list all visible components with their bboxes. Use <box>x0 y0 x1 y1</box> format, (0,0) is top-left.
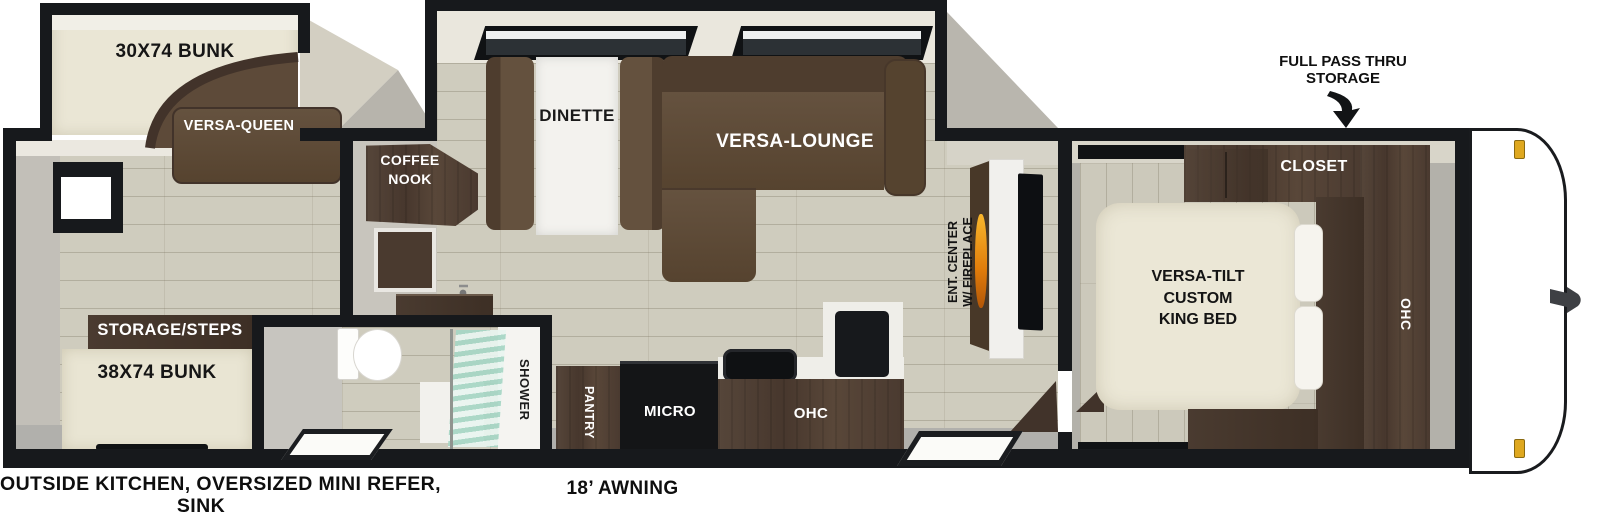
king-bed-label: VERSA-TILT CUSTOM KING BED <box>1106 266 1290 331</box>
bathroom-wall-top <box>252 315 552 327</box>
dinette-label: DINETTE <box>532 107 622 125</box>
wall-cabinet-panel <box>374 228 436 292</box>
rear-wall-right <box>340 135 353 327</box>
ent-center-label: ENT. CENTER W/ FIREPLACE <box>946 202 976 322</box>
awning-label: 18’ AWNING <box>540 479 705 500</box>
versa-lounge-armrest <box>884 59 926 196</box>
bedroom-wardrobe <box>1316 197 1364 464</box>
fireplace-flame-icon <box>975 214 987 308</box>
bathroom-wall-left <box>252 315 264 460</box>
window-glass <box>743 31 921 55</box>
pass-thru-annotation: FULL PASS THRU STORAGE <box>1268 53 1418 87</box>
pantry-label: PANTRY <box>574 372 596 452</box>
bunk-slide-wall-left <box>40 3 52 135</box>
ent-center-label-line1: ENT. CENTER <box>946 202 961 322</box>
coffee-nook-label-line1: COFFEE <box>368 153 452 168</box>
roof-angle-right <box>947 12 1058 128</box>
rear-window-pane <box>61 177 111 219</box>
outside-kitchen-label-line1: OUTSIDE KITCHEN, OVERSIZED MINI REFER, <box>0 474 402 495</box>
dinette-bench-left <box>486 57 534 230</box>
king-bed-label-line1: VERSA-TILT <box>1106 266 1290 288</box>
shower-label: SHOWER <box>506 341 532 439</box>
bedroom-ohc-label: OHC <box>1388 283 1414 345</box>
kitchen-ohc-label: OHC <box>718 406 904 422</box>
bunk-30x74-label: 30X74 BUNK <box>95 42 255 63</box>
floorplan: 30X74 BUNK VERSA-QUEEN DINETTE VERSA-LOU… <box>0 0 1600 517</box>
king-bed-label-line2: CUSTOM <box>1106 288 1290 310</box>
window-glass <box>486 31 686 55</box>
pass-thru-line2: STORAGE <box>1268 70 1418 87</box>
main-wall-top-right <box>935 128 1469 141</box>
storage-steps-label: STORAGE/STEPS <box>88 322 252 340</box>
overbed-cabinet-divider <box>1225 152 1227 198</box>
bunk-38x74-label: 38X74 BUNK <box>62 363 252 384</box>
slideout-wall-left <box>425 0 437 140</box>
bunk-slide-wall-right <box>298 3 310 53</box>
versa-lounge-chaise <box>662 188 756 282</box>
bunk-slide-wall-top <box>40 3 310 15</box>
bedroom-wall-left-upper <box>1058 141 1072 371</box>
entry-door-mat <box>897 431 1023 466</box>
versa-queen-label: VERSA-QUEEN <box>174 119 304 135</box>
dinette-bench-right <box>620 57 666 230</box>
bedroom-wall-left-lower <box>1058 432 1072 452</box>
main-wall-top-left <box>300 128 437 141</box>
king-bed-label-line3: KING BED <box>1106 309 1290 331</box>
arrow-down-icon <box>1327 91 1360 128</box>
rear-wall-left <box>3 128 16 461</box>
outside-kitchen-label-line2: SINK <box>0 496 402 517</box>
tv <box>1018 173 1043 330</box>
shower-glass-pole <box>450 329 453 449</box>
bathroom-wall-right <box>540 315 552 460</box>
kitchen-sink <box>835 311 889 377</box>
bottom-wall <box>3 449 1467 468</box>
slideout-wall-right <box>935 0 947 140</box>
shower-glass <box>448 330 506 447</box>
bedroom-window-top <box>1078 145 1186 159</box>
entry-steps <box>1010 381 1058 432</box>
clearance-light-bottom <box>1514 439 1525 458</box>
pass-thru-line1: FULL PASS THRU <box>1268 53 1418 70</box>
cooktop <box>723 349 797 382</box>
slideout-window-right <box>731 26 933 60</box>
clearance-light-top <box>1514 140 1525 159</box>
hitch-icon <box>1550 287 1581 313</box>
toilet-bowl <box>353 329 402 381</box>
pillow-top <box>1294 224 1323 302</box>
coffee-nook-label-line2: NOOK <box>368 172 452 187</box>
slideout-window-left <box>474 26 698 60</box>
versa-lounge-back <box>662 56 908 96</box>
dinette-table <box>536 57 618 235</box>
ent-center-label-line2: W/ FIREPLACE <box>961 202 976 322</box>
versa-lounge-label: VERSA-LOUNGE <box>700 132 890 153</box>
pillow-bottom <box>1294 306 1323 390</box>
front-cap-wall <box>1455 128 1469 468</box>
slideout-wall-top <box>425 0 947 11</box>
micro-label: MICRO <box>620 404 720 420</box>
closet-label: CLOSET <box>1262 158 1366 175</box>
